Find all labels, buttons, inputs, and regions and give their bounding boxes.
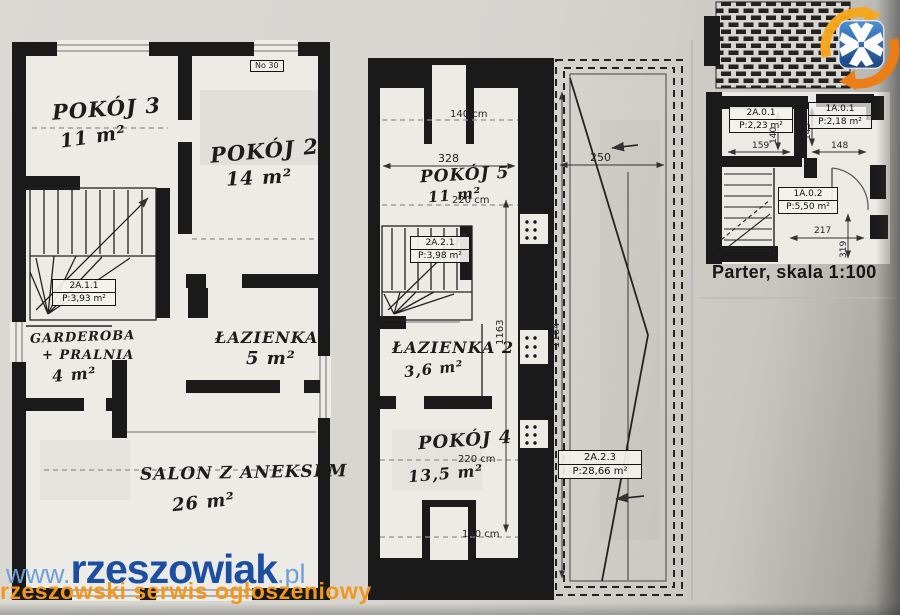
unit-tag-1a02: 1A.0.2 P:5,50 m² [778,187,838,214]
photo-edge-shadow-bottom [0,603,900,615]
photo-edge-shadow-right [876,0,900,615]
room-area-pokoj2: 14 m² [226,167,293,189]
unit-number-tag: No 30 [250,60,284,72]
scanned-floorplan-page: No 30 POKÓJ 3 11 m² POKÓJ 2 14 m² 2A.1.1… [0,0,900,615]
unit-tag-id: 1A.0.2 [779,188,837,201]
unit-tag-area: P:2,23 m² [730,120,792,132]
unit-tag-2a21: 2A.2.1 P:3,98 m² [410,236,470,263]
room-label-pralnia: + PRALNIA [42,349,134,362]
room-area-lazienka: 5 m² [246,350,296,368]
plan-caption: Parter, skala 1:100 [712,263,877,281]
unit-tag-area: P:3,98 m² [411,250,469,262]
top-door [424,58,474,144]
dim-width-328: 328 [438,153,459,164]
dim-148: 148 [831,142,848,151]
room-area-garderoba: 4 m² [51,365,97,385]
terrace-area [556,40,692,600]
unit-tag-id: 2A.2.3 [559,451,641,465]
dim-217: 217 [814,227,831,236]
unit-tag-id: 1A.0.1 [809,103,871,116]
unit-tag-id: 2A.1.1 [53,280,115,293]
dim-terrace-width: 250 [590,152,611,163]
unit-tag-area: P:28,66 m² [559,465,641,478]
room-label-salon: SALON Z ANEKSEM [140,463,348,484]
unit-tag-area: P:3,93 m² [53,293,115,305]
floorplan-linework [0,0,900,615]
watermark-tagline: rzeszowski serwis ogłoszeniowy [0,578,372,605]
dim-height-1163: 1163 [496,320,506,345]
dim-door-bottom: 140 cm [462,530,500,540]
unit-tag-2a23: 2A.2.3 P:28,66 m² [558,450,642,479]
unit-tag-2a01: 2A.0.1 P:2,23 m² [729,106,793,133]
dim-140: 140 [770,127,779,144]
dim-height-1164: 1164 [552,323,562,348]
dim-pokoj5-depth: 220 cm [452,196,490,206]
room-label-lazienka: ŁAZIENKA [215,330,318,346]
unit-tag-1a01: 1A.0.1 P:2,18 m² [808,102,872,129]
rzeszow-crest-logo [816,4,900,92]
dim-159: 159 [752,142,769,151]
dim-319: 319 [840,241,849,258]
unit-tag-2a11: 2A.1.1 P:3,93 m² [52,279,116,306]
room-label-garderoba: GARDEROBA [30,329,136,346]
unit-tag-id: 2A.2.1 [411,237,469,250]
room-label-pokoj5: POKÓJ 5 [420,165,510,187]
rzeszow-crest-icon [816,4,900,92]
unit-tag-id: 2A.0.1 [730,107,792,120]
dim-door-top: 140 cm [450,110,488,120]
unit-tag-area: P:5,50 m² [779,201,837,213]
dim-145: 145 [804,123,813,140]
unit-tag-area: P:2,18 m² [809,116,871,128]
